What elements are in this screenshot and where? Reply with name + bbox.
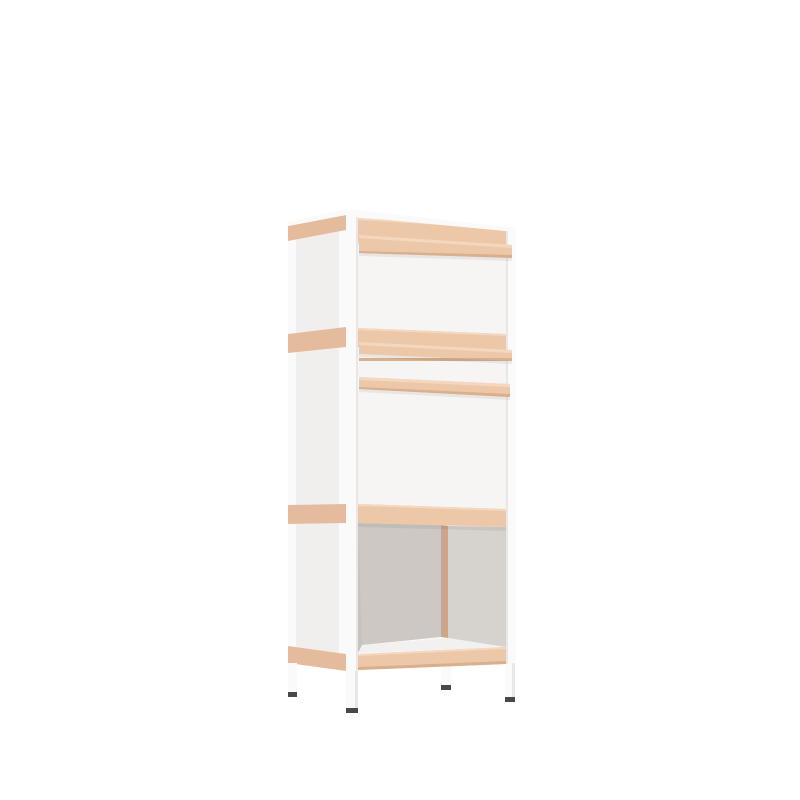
cabinet-render — [0, 0, 800, 800]
leg-back-left-foot — [288, 692, 297, 697]
leg-front-left-shade — [355, 671, 358, 713]
side-panel-upper — [296, 231, 339, 333]
post-front-right-seam — [506, 228, 508, 664]
post-front-left-seam — [356, 212, 358, 671]
side-panel-lower — [296, 523, 339, 653]
compartment-corner-wood-strip — [441, 525, 448, 638]
front-door-lower — [358, 389, 506, 509]
side-panel-middle — [296, 348, 339, 505]
leg-back-right — [441, 665, 451, 690]
open-compartment — [358, 523, 506, 653]
cabinet-left-side — [288, 215, 346, 671]
leg-back-left — [288, 663, 297, 697]
leg-front-left — [346, 671, 358, 713]
product-render-canvas — [0, 0, 800, 800]
leg-front-right-shade — [512, 663, 515, 702]
compartment-right-wall — [448, 526, 506, 648]
compartment-back-wall — [358, 523, 441, 645]
side-wood-rail-lower-shelf — [288, 504, 346, 524]
leg-front-left-foot — [346, 708, 358, 713]
leg-front-right — [505, 663, 515, 702]
leg-front-right-foot — [505, 697, 515, 702]
leg-back-right-foot — [441, 685, 451, 690]
leg-back-left-post — [288, 663, 297, 697]
